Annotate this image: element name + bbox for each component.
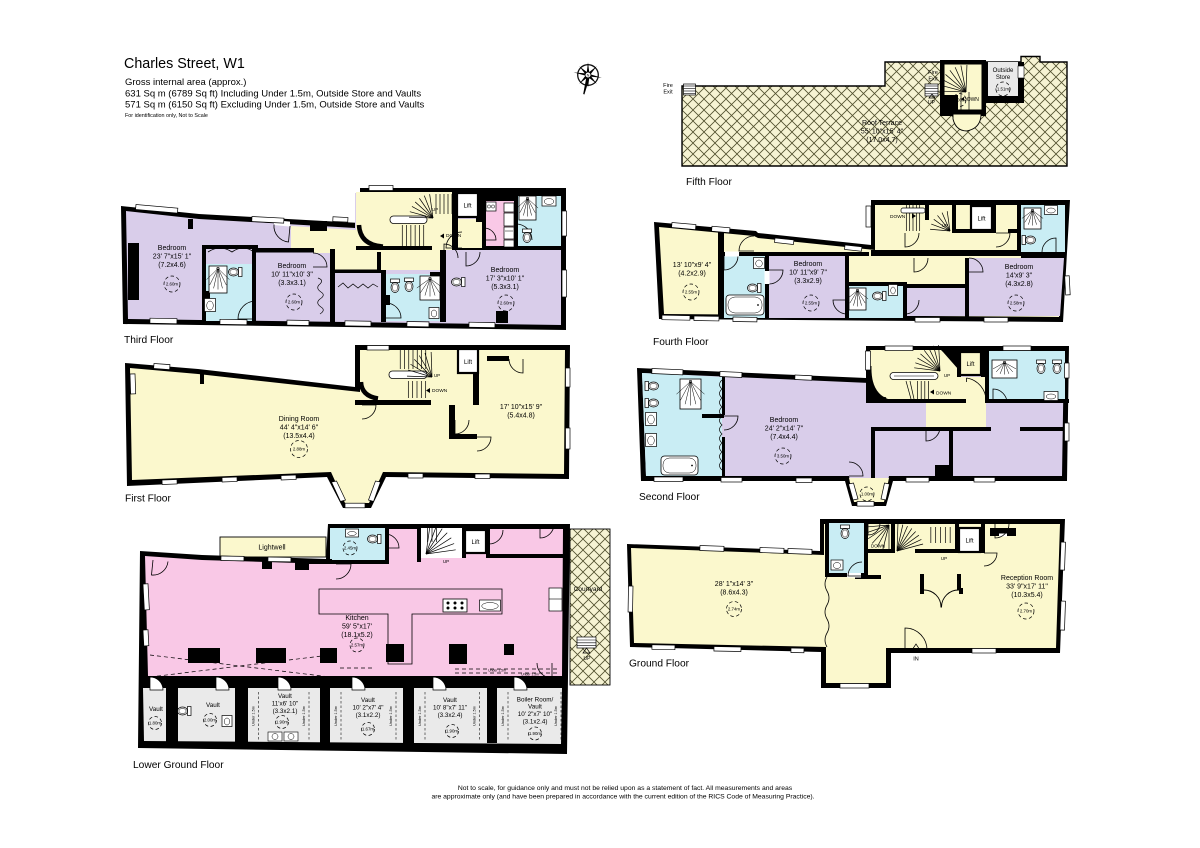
svg-text:2.55m: 2.55m — [805, 301, 818, 306]
svg-text:(3.3x2.1): (3.3x2.1) — [273, 708, 298, 715]
svg-text:1.90m: 1.90m — [446, 729, 459, 734]
svg-text:Gross internal area (approx.): Gross internal area (approx.) — [125, 77, 246, 88]
svg-text:DOWN: DOWN — [432, 388, 448, 394]
svg-text:DOWN: DOWN — [890, 214, 906, 220]
svg-text:28' 1"x14' 3": 28' 1"x14' 3" — [715, 581, 754, 588]
svg-text:2.60m: 2.60m — [166, 282, 179, 287]
svg-text:(3.3x3.1): (3.3x3.1) — [278, 280, 306, 287]
svg-text:Lightwell: Lightwell — [258, 545, 286, 552]
svg-text:First Floor: First Floor — [125, 494, 171, 505]
svg-text:Vault: Vault — [149, 706, 163, 713]
svg-text:2.00m: 2.00m — [204, 718, 217, 723]
svg-text:Lift: Lift — [977, 217, 985, 223]
svg-text:(13.5x4.4): (13.5x4.4) — [283, 433, 315, 440]
svg-text:Bedroom: Bedroom — [1005, 264, 1034, 271]
svg-text:(3.1x2.4): (3.1x2.4) — [523, 719, 548, 726]
svg-text:UP: UP — [942, 223, 948, 228]
svg-text:Bedroom: Bedroom — [158, 245, 187, 252]
svg-text:2.70m: 2.70m — [1020, 609, 1033, 614]
svg-text:10' 8"x7' 11": 10' 8"x7' 11" — [433, 705, 467, 712]
svg-text:UP: UP — [432, 207, 438, 212]
svg-text:(7.4x4.4): (7.4x4.4) — [770, 434, 798, 441]
svg-text:2.74m: 2.74m — [728, 607, 741, 612]
svg-text:UP: UP — [443, 559, 449, 564]
svg-text:2.57m: 2.57m — [351, 643, 364, 648]
svg-text:Vault: Vault — [206, 702, 220, 709]
svg-text:(5.4x4.8): (5.4x4.8) — [507, 413, 535, 420]
svg-text:Under 1.5m: Under 1.5m — [473, 706, 477, 726]
svg-text:Under 1.5m: Under 1.5m — [334, 706, 338, 726]
svg-text:(4.2x2.9): (4.2x2.9) — [678, 271, 706, 278]
svg-text:571 Sq m (6150 Sq ft) Excludin: 571 Sq m (6150 Sq ft) Excluding Under 1.… — [125, 100, 424, 111]
svg-text:13' 10"x9' 4": 13' 10"x9' 4" — [673, 262, 712, 269]
svg-text:UP: UP — [941, 556, 947, 561]
svg-text:Exit: Exit — [928, 77, 938, 83]
svg-text:Under 1.5m: Under 1.5m — [521, 673, 539, 677]
svg-text:14'x9' 3": 14'x9' 3" — [1006, 273, 1033, 280]
svg-text:2.60m: 2.60m — [288, 300, 301, 305]
svg-text:Kitchen: Kitchen — [345, 615, 368, 622]
svg-text:Second Floor: Second Floor — [639, 492, 700, 503]
svg-text:Bedroom: Bedroom — [278, 263, 307, 270]
svg-text:(3.1x2.2): (3.1x2.2) — [356, 712, 381, 719]
svg-text:UP: UP — [584, 656, 592, 662]
svg-text:UP: UP — [928, 100, 936, 106]
svg-text:Dining Room: Dining Room — [279, 416, 320, 423]
svg-text:Lift: Lift — [966, 362, 974, 368]
svg-text:(7.2x4.6): (7.2x4.6) — [158, 262, 186, 269]
svg-text:2.58m: 2.58m — [1010, 301, 1023, 306]
svg-text:DOWN: DOWN — [871, 544, 885, 549]
svg-text:For identification only, Not t: For identification only, Not to Scale — [125, 113, 208, 119]
svg-text:Under 1.5m: Under 1.5m — [554, 706, 558, 726]
svg-text:Boiler Room/: Boiler Room/ — [517, 697, 554, 704]
svg-text:Under 1.5m: Under 1.5m — [302, 706, 306, 726]
svg-text:(1.51m): (1.51m) — [995, 87, 1011, 92]
svg-text:Bedroom: Bedroom — [794, 261, 823, 268]
svg-text:24' 2"x14' 7": 24' 2"x14' 7" — [765, 426, 804, 433]
svg-text:44' 4"x14' 6": 44' 4"x14' 6" — [280, 425, 319, 432]
svg-text:59' 5"x17': 59' 5"x17' — [342, 624, 372, 631]
svg-text:(8.6x4.3): (8.6x4.3) — [720, 590, 748, 597]
svg-text:Under 1.5m: Under 1.5m — [501, 706, 505, 726]
svg-text:N: N — [587, 74, 590, 78]
svg-text:1.67m: 1.67m — [362, 727, 375, 732]
svg-text:(17.0x4.7): (17.0x4.7) — [866, 137, 898, 144]
svg-text:Under 1.5m: Under 1.5m — [418, 706, 422, 726]
svg-text:Courtyard: Courtyard — [574, 586, 603, 593]
svg-text:10' 2"x7' 4": 10' 2"x7' 4" — [352, 705, 383, 712]
svg-text:UP: UP — [434, 373, 440, 378]
svg-text:Lift: Lift — [965, 539, 973, 545]
svg-text:Exit: Exit — [663, 90, 673, 96]
svg-text:Roof Terrace: Roof Terrace — [862, 120, 902, 127]
svg-text:Lift: Lift — [471, 540, 479, 546]
svg-text:17' 3"x10' 1": 17' 3"x10' 1" — [486, 276, 525, 283]
svg-text:Fire: Fire — [928, 70, 938, 76]
svg-text:33' 9"x17' 11": 33' 9"x17' 11" — [1006, 584, 1048, 591]
svg-text:Third Floor: Third Floor — [124, 335, 174, 346]
svg-text:(3.3x2.4): (3.3x2.4) — [438, 712, 463, 719]
svg-text:2.45m: 2.45m — [344, 546, 357, 551]
svg-text:UP: UP — [944, 373, 950, 378]
svg-text:631 Sq m (6789 Sq ft) Includin: 631 Sq m (6789 Sq ft) Including Under 1.… — [125, 89, 421, 100]
svg-text:2.88m: 2.88m — [293, 447, 306, 452]
svg-text:Lift: Lift — [463, 204, 471, 210]
svg-text:Outside: Outside — [993, 68, 1014, 74]
svg-text:(5.3x3.1): (5.3x3.1) — [491, 284, 519, 291]
svg-text:2.60m: 2.60m — [500, 301, 513, 306]
svg-text:17' 10"x15' 9": 17' 10"x15' 9" — [500, 404, 543, 411]
svg-text:are approximate only (and have: are approximate only (and have been prep… — [431, 794, 814, 801]
svg-text:Fire: Fire — [663, 83, 673, 89]
svg-text:2.55m: 2.55m — [685, 290, 698, 295]
svg-text:10' 2"x7' 10": 10' 2"x7' 10" — [518, 711, 553, 718]
svg-text:Store: Store — [996, 75, 1011, 81]
svg-text:1.90m: 1.90m — [529, 731, 542, 736]
svg-text:DOWN: DOWN — [936, 391, 952, 397]
svg-text:10' 11"x10' 3": 10' 11"x10' 3" — [271, 272, 313, 279]
svg-text:Fourth Floor: Fourth Floor — [653, 337, 709, 348]
svg-text:1.90m: 1.90m — [276, 720, 289, 725]
svg-text:1.00m: 1.00m — [861, 492, 874, 497]
svg-text:Not to scale, for guidance onl: Not to scale, for guidance only and must… — [458, 785, 793, 792]
svg-text:Vault: Vault — [443, 697, 457, 704]
svg-text:Fifth Floor: Fifth Floor — [686, 177, 732, 188]
svg-text:Reception Room: Reception Room — [1001, 575, 1053, 582]
svg-text:Lift: Lift — [464, 360, 472, 366]
svg-text:(4.3x2.8): (4.3x2.8) — [1005, 281, 1033, 288]
svg-text:55' 10"x15' 4": 55' 10"x15' 4" — [861, 129, 904, 136]
svg-text:Vault: Vault — [528, 704, 542, 711]
svg-text:11'x6' 10": 11'x6' 10" — [272, 701, 299, 708]
svg-text:3.50m: 3.50m — [777, 454, 790, 459]
svg-text:Lower Ground Floor: Lower Ground Floor — [133, 760, 224, 771]
svg-text:IN: IN — [913, 657, 919, 663]
svg-text:Under 1.5m: Under 1.5m — [389, 706, 393, 726]
svg-text:Charles Street, W1: Charles Street, W1 — [124, 56, 245, 72]
svg-text:2.00m: 2.00m — [953, 98, 966, 103]
svg-text:(3.3x2.9): (3.3x2.9) — [794, 278, 822, 285]
svg-text:(10.3x5.4): (10.3x5.4) — [1011, 592, 1043, 599]
svg-text:Bedroom: Bedroom — [491, 267, 520, 274]
svg-text:Vault: Vault — [278, 693, 292, 700]
svg-text:1.80m: 1.80m — [149, 721, 162, 726]
svg-text:Ground Floor: Ground Floor — [629, 659, 690, 670]
svg-text:Bedroom: Bedroom — [770, 417, 799, 424]
svg-text:Under 1.5m: Under 1.5m — [488, 669, 506, 673]
svg-text:23' 7"x15' 1": 23' 7"x15' 1" — [153, 254, 192, 261]
svg-text:Vault: Vault — [361, 697, 375, 704]
svg-text:10' 11"x9' 7": 10' 11"x9' 7" — [789, 270, 827, 277]
svg-text:Under 1.5m: Under 1.5m — [252, 706, 256, 726]
